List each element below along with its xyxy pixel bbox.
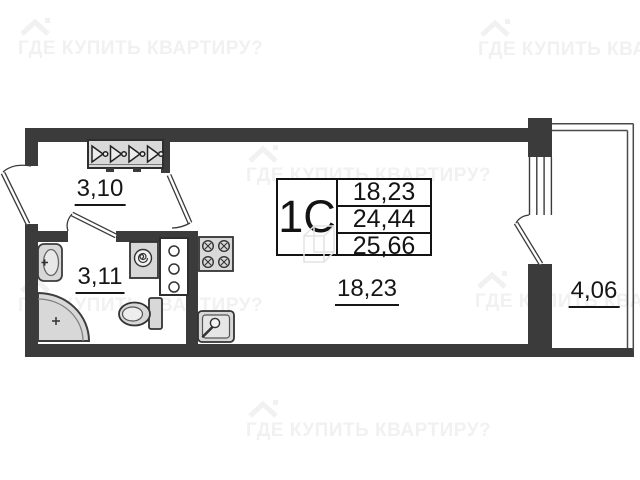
shelf-column-icon: [160, 238, 188, 295]
area-row: 24,44: [338, 207, 430, 234]
unit-info-table: 1С 18,23 24,44 25,66: [276, 178, 432, 256]
balcony-outline: [552, 124, 633, 351]
stove-icon: [199, 237, 233, 271]
toilet-icon: [119, 298, 162, 329]
box-sketch-icon: [302, 224, 340, 264]
washing-machine-icon: [130, 242, 158, 278]
bathroom-door-icon: [67, 214, 116, 236]
wardrobe-icon: [88, 140, 163, 172]
area-values-column: 18,23 24,44 25,66: [338, 180, 430, 254]
room-label-bathroom: 3,11: [76, 265, 125, 294]
kitchen-sink-icon: [198, 311, 234, 342]
floorplan-canvas: ГДЕ КУПИТЬ КВАРТИРУ? ГДЕ КУПИТЬ КВАРТИРУ…: [0, 0, 640, 480]
balcony-door-icon: [516, 215, 541, 264]
room-label-living-room: 18,23: [335, 277, 399, 306]
area-row: 18,23: [338, 180, 430, 207]
balcony-window-icon: [530, 157, 552, 215]
room-label-hallway: 3,10: [75, 177, 126, 206]
shower-icon: [38, 293, 89, 341]
entrance-door-icon: [3, 165, 31, 224]
area-row: 25,66: [338, 234, 430, 259]
bath-sink-icon: [38, 244, 62, 281]
room-door-icon: [169, 175, 190, 228]
room-label-balcony: 4,06: [569, 279, 620, 308]
